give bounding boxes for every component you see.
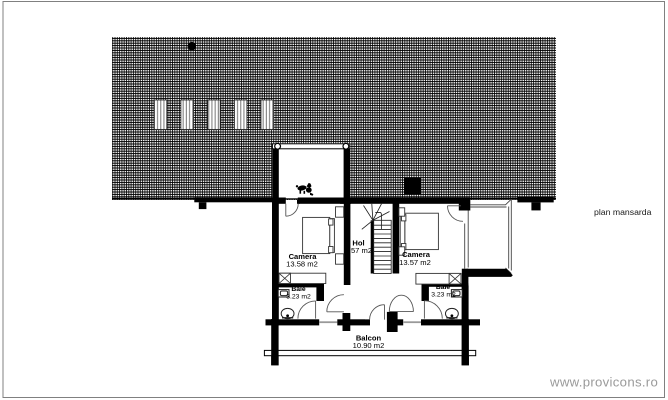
svg-text:Baie: Baie	[436, 284, 451, 291]
svg-text:www.provicons.ro: www.provicons.ro	[549, 375, 658, 390]
svg-text:13.58 m2: 13.58 m2	[286, 260, 318, 269]
svg-text:plan mansarda: plan mansarda	[594, 207, 652, 217]
svg-text:3.23 m2: 3.23 m2	[431, 291, 456, 298]
svg-text:57 m2: 57 m2	[351, 246, 372, 255]
svg-text:10.90 m2: 10.90 m2	[353, 341, 385, 350]
svg-text:Baie: Baie	[291, 286, 306, 293]
svg-text:3.23 m2: 3.23 m2	[286, 293, 311, 300]
svg-text:13.57 m2: 13.57 m2	[399, 258, 431, 267]
